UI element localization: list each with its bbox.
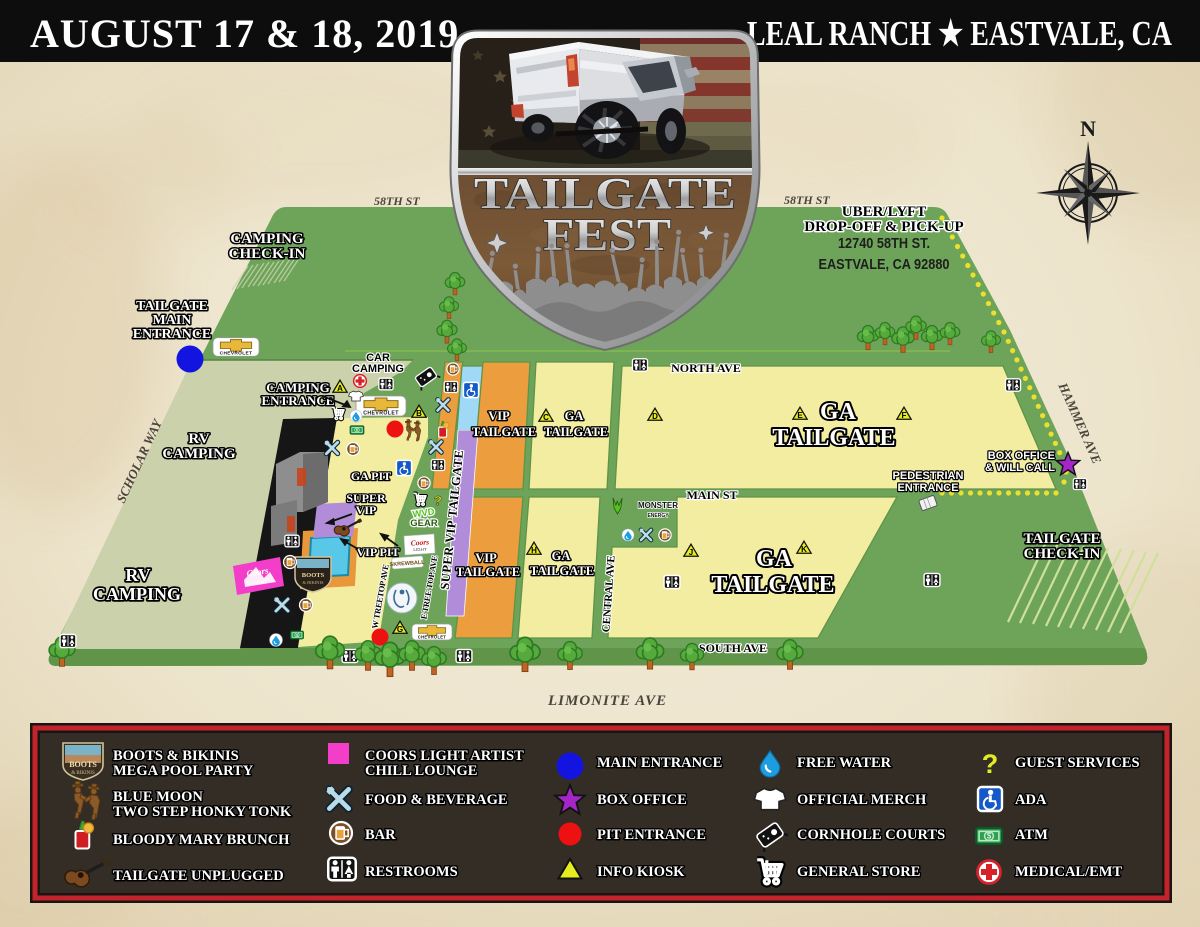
svg-text:BOOTS: BOOTS bbox=[69, 760, 97, 769]
svg-text:TWO STEP HONKY TONK: TWO STEP HONKY TONK bbox=[113, 804, 292, 820]
svg-text:OFFICIAL MERCH: OFFICIAL MERCH bbox=[797, 792, 927, 808]
svg-text:COORS LIGHT ARTIST: COORS LIGHT ARTIST bbox=[365, 748, 524, 764]
svg-text:GA: GA bbox=[565, 409, 584, 423]
svg-text:12740 58TH ST.: 12740 58TH ST. bbox=[838, 235, 930, 251]
svg-text:TAILGATE: TAILGATE bbox=[772, 425, 895, 451]
svg-text:LIMONITE AVE: LIMONITE AVE bbox=[547, 693, 667, 709]
svg-text:RV: RV bbox=[125, 565, 150, 585]
svg-text:TAILGATE UNPLUGGED: TAILGATE UNPLUGGED bbox=[113, 868, 284, 884]
svg-text:ATM: ATM bbox=[1015, 827, 1048, 843]
svg-text:GEAR: GEAR bbox=[410, 518, 438, 529]
svg-text:CHECK-IN: CHECK-IN bbox=[1024, 546, 1101, 562]
svg-text:VIP: VIP bbox=[356, 503, 377, 517]
svg-text:D: D bbox=[652, 412, 658, 421]
svg-text:CAMPING: CAMPING bbox=[230, 231, 304, 247]
svg-text:CHECK-IN: CHECK-IN bbox=[229, 246, 306, 262]
svg-text:TAILGATE: TAILGATE bbox=[544, 425, 608, 439]
svg-text:B: B bbox=[416, 409, 422, 418]
svg-text:ENERGY: ENERGY bbox=[647, 513, 669, 519]
svg-text:TAILGATE: TAILGATE bbox=[136, 299, 208, 314]
svg-text:H: H bbox=[531, 546, 537, 555]
svg-text:ENTRANCE: ENTRANCE bbox=[262, 393, 335, 408]
svg-text:LEAL RANCH ★ EASTVALE, CA: LEAL RANCH ★ EASTVALE, CA bbox=[747, 14, 1172, 53]
svg-text:EASTVALE, CA 92880: EASTVALE, CA 92880 bbox=[818, 256, 949, 272]
svg-text:DROP-OFF & PICK-UP: DROP-OFF & PICK-UP bbox=[804, 219, 963, 235]
svg-text:BLOODY MARY BRUNCH: BLOODY MARY BRUNCH bbox=[113, 832, 290, 848]
svg-text:BOX OFFICE: BOX OFFICE bbox=[597, 792, 687, 808]
svg-text:58TH ST: 58TH ST bbox=[374, 194, 420, 208]
svg-text:LIGHT: LIGHT bbox=[413, 547, 427, 552]
svg-text:CAMPING: CAMPING bbox=[162, 446, 236, 462]
svg-text:MONSTER: MONSTER bbox=[638, 501, 678, 510]
svg-text:GA PIT: GA PIT bbox=[351, 469, 391, 483]
svg-text:58TH ST: 58TH ST bbox=[784, 193, 830, 207]
svg-text:GA: GA bbox=[756, 546, 793, 572]
svg-text:BOX OFFICE: BOX OFFICE bbox=[988, 450, 1055, 462]
svg-text:TAILGATE: TAILGATE bbox=[1024, 531, 1101, 547]
svg-text:FREE WATER: FREE WATER bbox=[797, 755, 892, 771]
svg-text:VIP PIT: VIP PIT bbox=[356, 545, 399, 559]
svg-text:& BIKINIS: & BIKINIS bbox=[302, 580, 324, 585]
svg-text:A: A bbox=[337, 384, 343, 393]
svg-text:TAILGATE: TAILGATE bbox=[530, 564, 594, 578]
svg-text:VIP: VIP bbox=[475, 551, 497, 565]
svg-text:BOOTS: BOOTS bbox=[302, 572, 325, 579]
svg-text:CORNHOLE COURTS: CORNHOLE COURTS bbox=[797, 827, 945, 843]
svg-text:BOOTS & BIKINIS: BOOTS & BIKINIS bbox=[113, 748, 239, 764]
svg-text:FOOD & BEVERAGE: FOOD & BEVERAGE bbox=[365, 792, 508, 808]
svg-text:& BIKINIS: & BIKINIS bbox=[71, 771, 95, 776]
svg-text:CAMPING: CAMPING bbox=[352, 363, 404, 375]
svg-text:C: C bbox=[543, 413, 549, 422]
svg-text:G: G bbox=[397, 625, 403, 634]
svg-text:MEGA POOL PARTY: MEGA POOL PARTY bbox=[113, 763, 254, 779]
svg-text:J: J bbox=[689, 548, 693, 557]
svg-text:E: E bbox=[797, 411, 803, 420]
svg-text:TAILGATE: TAILGATE bbox=[456, 565, 520, 579]
svg-text:TAILGATE: TAILGATE bbox=[711, 572, 834, 598]
svg-text:PIT ENTRANCE: PIT ENTRANCE bbox=[597, 827, 706, 843]
svg-text:MEDICAL/EMT: MEDICAL/EMT bbox=[1015, 864, 1122, 880]
svg-text:INFO KIOSK: INFO KIOSK bbox=[597, 864, 685, 880]
svg-text:?: ? bbox=[982, 749, 999, 779]
svg-text:UBER/LYFT: UBER/LYFT bbox=[842, 204, 926, 220]
svg-text:F: F bbox=[902, 411, 907, 420]
svg-text:CHILL LOUNGE: CHILL LOUNGE bbox=[365, 763, 477, 779]
svg-text:TAILGATE: TAILGATE bbox=[472, 425, 536, 439]
svg-text:BLUE MOON: BLUE MOON bbox=[113, 789, 203, 805]
svg-text:PEDESTRIAN: PEDESTRIAN bbox=[893, 470, 964, 482]
svg-text:SOUTH AVE: SOUTH AVE bbox=[699, 641, 767, 655]
svg-text:RESTROOMS: RESTROOMS bbox=[365, 864, 458, 880]
svg-text:ENTRANCE: ENTRANCE bbox=[897, 482, 958, 494]
svg-text:MAIN ENTRANCE: MAIN ENTRANCE bbox=[597, 755, 722, 771]
svg-text:RV: RV bbox=[188, 431, 209, 447]
svg-text:GUEST SERVICES: GUEST SERVICES bbox=[1015, 755, 1140, 771]
svg-text:MAIN: MAIN bbox=[153, 313, 192, 328]
svg-text:ENTRANCE: ENTRANCE bbox=[133, 327, 212, 342]
svg-text:BAR: BAR bbox=[365, 827, 396, 843]
svg-text:K: K bbox=[801, 545, 807, 554]
svg-text:GA: GA bbox=[552, 549, 571, 563]
svg-text:& WILL CALL: & WILL CALL bbox=[985, 462, 1055, 474]
svg-text:CAMPING: CAMPING bbox=[93, 584, 181, 604]
svg-text:NORTH AVE: NORTH AVE bbox=[671, 361, 741, 375]
svg-text:MAIN ST: MAIN ST bbox=[686, 488, 737, 502]
svg-text:AUGUST 17 & 18, 2019: AUGUST 17 & 18, 2019 bbox=[30, 11, 459, 56]
svg-text:GA: GA bbox=[820, 399, 857, 425]
svg-text:?: ? bbox=[434, 493, 442, 508]
svg-text:ADA: ADA bbox=[1015, 792, 1047, 808]
svg-text:N: N bbox=[1080, 116, 1096, 141]
svg-text:VIP: VIP bbox=[488, 409, 510, 423]
svg-text:GENERAL STORE: GENERAL STORE bbox=[797, 864, 920, 880]
svg-text:FEST: FEST bbox=[543, 209, 671, 260]
